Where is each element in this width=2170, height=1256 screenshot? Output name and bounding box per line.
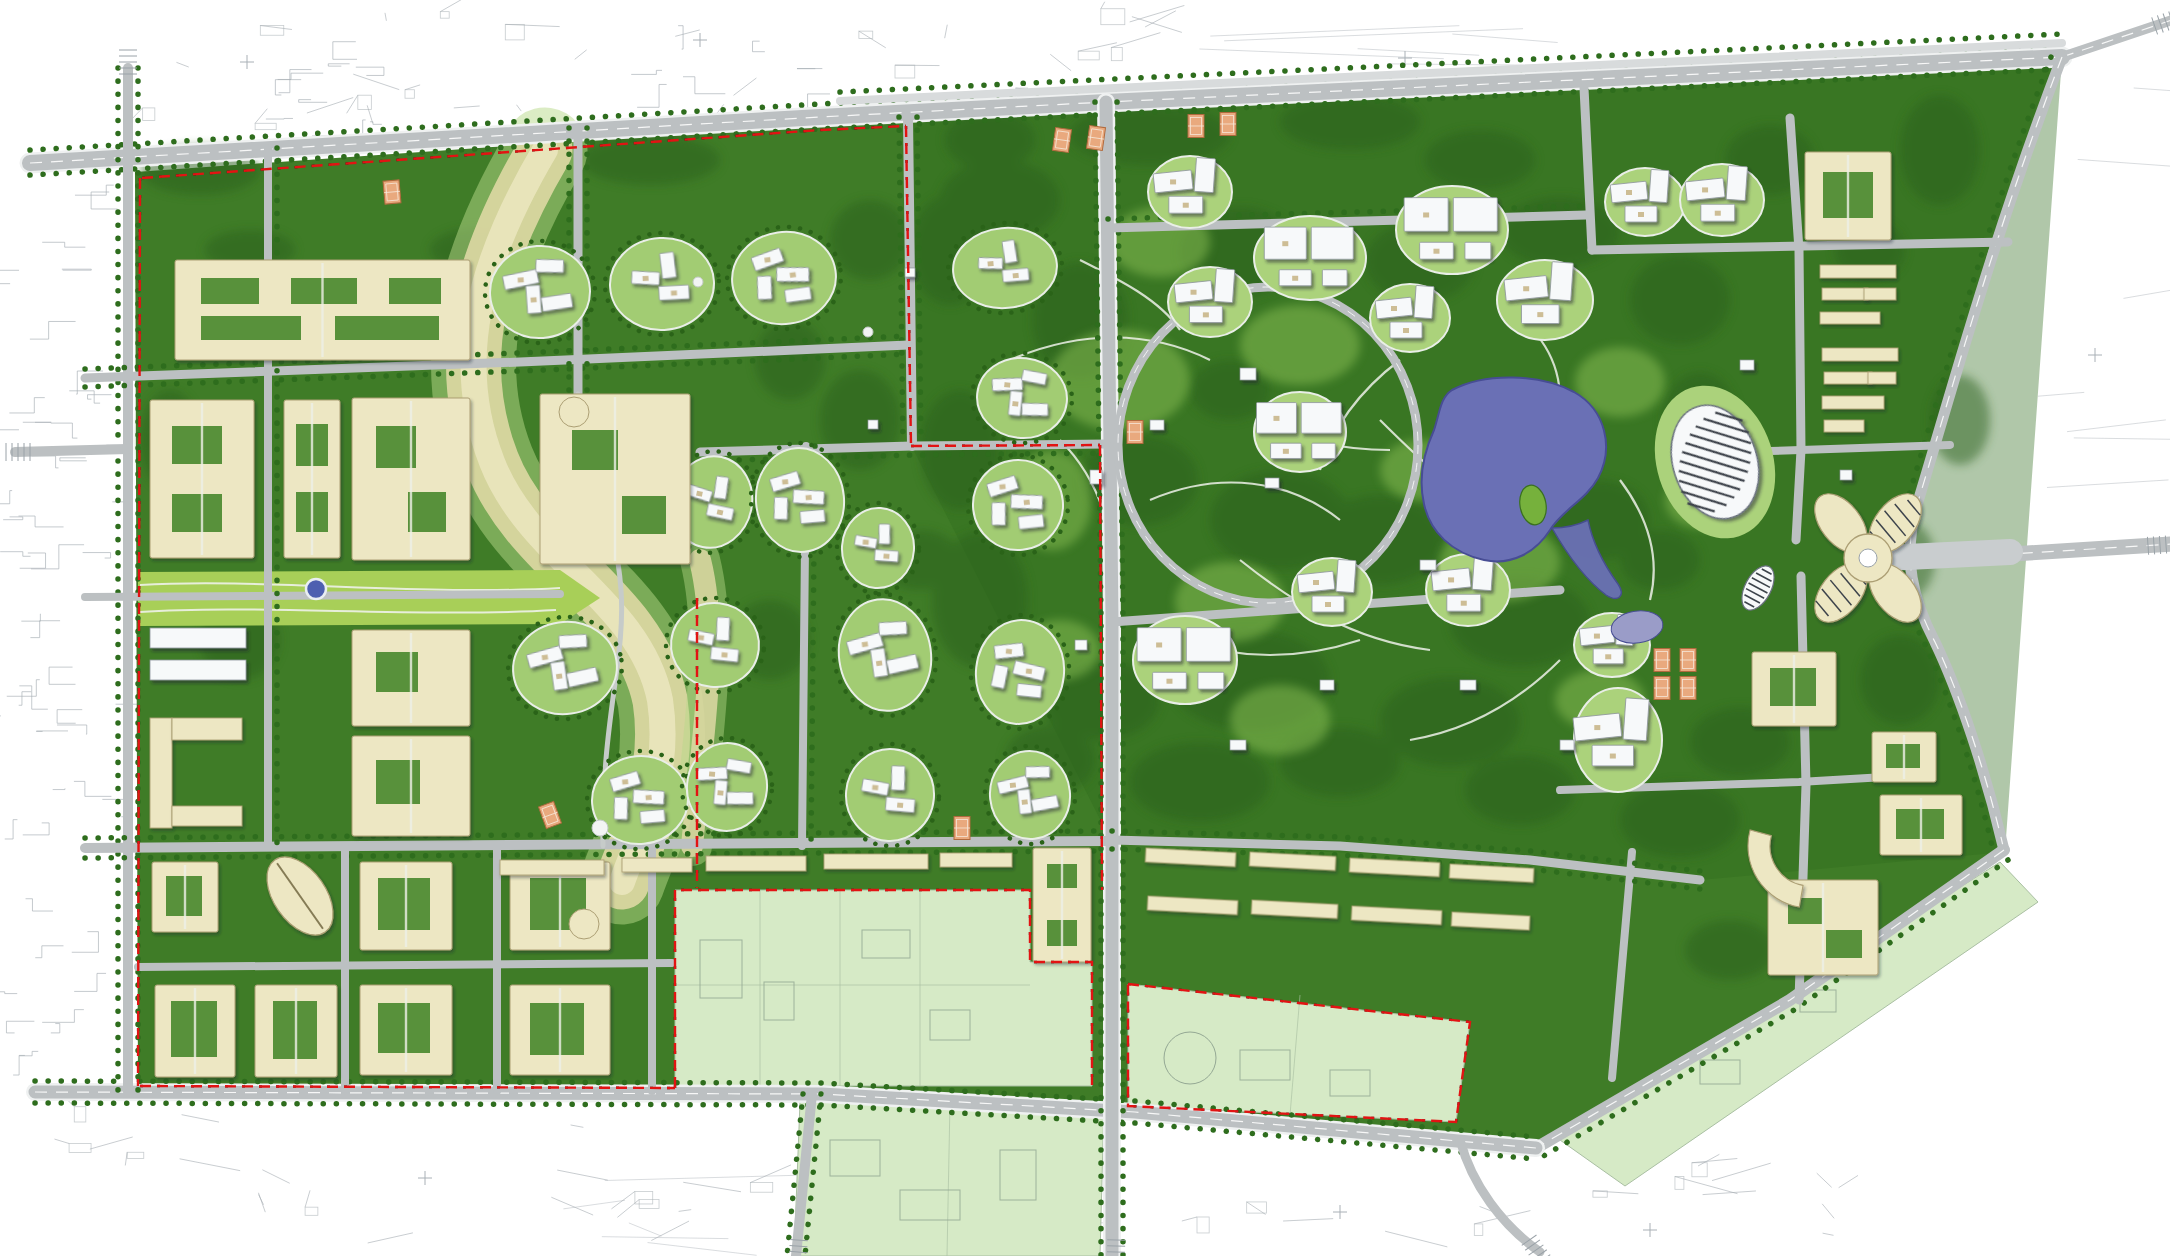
- survey-linework: [563, 1200, 625, 1209]
- tennis-court: [1680, 649, 1696, 672]
- survey-linework: [1385, 1231, 1447, 1247]
- survey-structure: [255, 123, 276, 129]
- survey-structure: [127, 1152, 144, 1158]
- survey-linework: [72, 932, 99, 953]
- survey-linework: [2067, 420, 2166, 432]
- survey-linework: [1132, 17, 1182, 33]
- small-building: [1840, 470, 1852, 480]
- survey-linework: [30, 621, 60, 638]
- survey-structure: [143, 108, 155, 121]
- tree-mass: [1860, 635, 1940, 725]
- survey-linework: [370, 122, 382, 125]
- ne-courtyard-building: [1805, 152, 1891, 240]
- survey-linework: [88, 395, 112, 399]
- sw-courtyard-building: [360, 862, 452, 950]
- east-cluster: [1148, 156, 1232, 228]
- u-shape-building: [172, 718, 242, 740]
- roadway: [1106, 102, 1112, 1256]
- survey-linework: [36, 731, 67, 732]
- inner-courtyard: [201, 316, 301, 340]
- survey-linework: [551, 1197, 593, 1215]
- survey-linework: [1130, 5, 1185, 21]
- survey-structure: [440, 12, 449, 19]
- survey-structure: [305, 1207, 318, 1215]
- residential-building: [660, 252, 677, 279]
- survey-linework: [6, 1021, 34, 1033]
- small-building: [1265, 478, 1279, 488]
- survey-linework: [0, 716, 1, 728]
- survey-linework: [637, 84, 667, 107]
- survey-cross-mark: [1333, 1205, 1347, 1219]
- survey-linework: [32, 456, 59, 468]
- survey-structure: [405, 90, 414, 98]
- east-building: [1301, 403, 1341, 434]
- white-slab-building: [150, 628, 246, 648]
- survey-linework: [35, 946, 63, 958]
- survey-linework: [368, 1233, 413, 1243]
- survey-linework: [1247, 1202, 1266, 1215]
- survey-linework: [305, 1190, 310, 1207]
- residential-building: [714, 476, 729, 499]
- tennis-court: [1052, 127, 1071, 152]
- round-pavilion: [569, 909, 599, 939]
- east-building: [1311, 227, 1353, 259]
- inner-courtyard: [172, 494, 222, 532]
- u-shape-building: [172, 806, 242, 826]
- survey-cross-mark: [693, 33, 707, 47]
- survey-linework: [753, 41, 765, 52]
- survey-structure: [1197, 1217, 1209, 1233]
- residential-building: [716, 617, 729, 641]
- se-courtyard-building: [1752, 652, 1836, 726]
- residential-building: [757, 276, 772, 299]
- east-cluster: [1168, 267, 1252, 337]
- survey-linework: [60, 458, 87, 461]
- se-courtyard-building: [1872, 732, 1936, 782]
- slab-building: [1824, 420, 1864, 432]
- survey-linework: [683, 77, 725, 94]
- east-building: [1336, 559, 1356, 592]
- white-slab-building: [150, 660, 246, 680]
- survey-linework: [675, 30, 699, 36]
- slab-building: [824, 854, 928, 869]
- u-shape-building: [150, 718, 172, 828]
- inner-courtyard: [389, 278, 441, 304]
- survey-structure: [895, 65, 915, 78]
- small-building: [1075, 640, 1087, 650]
- survey-linework: [19, 692, 32, 706]
- east-building: [1312, 443, 1336, 458]
- survey-linework: [54, 1139, 69, 1143]
- survey-linework: [683, 1182, 741, 1191]
- survey-linework: [21, 614, 40, 621]
- survey-linework: [440, 0, 473, 12]
- survey-linework: [0, 270, 19, 283]
- east-cluster: [1605, 168, 1685, 236]
- slab-building: [1822, 396, 1884, 409]
- east-building: [1550, 262, 1574, 301]
- survey-linework: [260, 26, 292, 30]
- survey-linework: [53, 789, 66, 790]
- survey-linework: [19, 686, 48, 709]
- east-building: [1194, 157, 1215, 192]
- survey-linework: [1182, 1217, 1197, 1221]
- roadway: [138, 963, 672, 967]
- survey-linework: [405, 85, 420, 90]
- east-building: [1649, 169, 1669, 202]
- plaza-circle: [592, 820, 608, 836]
- survey-linework: [734, 78, 757, 95]
- survey-linework: [9, 398, 44, 413]
- tree-mass: [1130, 742, 1270, 822]
- survey-linework: [176, 62, 188, 67]
- residential-building: [800, 509, 825, 523]
- small-building: [868, 420, 878, 429]
- master-plan-rendering: [0, 0, 2170, 1256]
- tennis-court: [383, 180, 401, 204]
- survey-linework: [307, 98, 353, 113]
- small-building: [1560, 740, 1574, 750]
- survey-structure: [74, 1107, 86, 1122]
- east-cluster: [1680, 164, 1764, 236]
- east-building: [1414, 285, 1434, 318]
- inner-courtyard: [408, 492, 446, 532]
- survey-linework: [26, 899, 53, 911]
- survey-linework: [20, 553, 46, 568]
- tree-mass: [1380, 677, 1520, 767]
- survey-structure: [1078, 51, 1099, 60]
- survey-linework: [262, 1170, 289, 1183]
- slab-building: [622, 858, 692, 872]
- slab-building: [1868, 372, 1896, 384]
- residential-building: [614, 797, 628, 819]
- road-central-north-south-road: [1095, 102, 1123, 1256]
- survey-linework: [571, 1125, 584, 1127]
- survey-linework: [2047, 480, 2169, 488]
- survey-linework: [557, 1170, 608, 1180]
- courtyard-building: [352, 736, 470, 836]
- roadway: [2062, 20, 2170, 57]
- survey-linework: [575, 50, 587, 59]
- survey-linework: [57, 710, 82, 724]
- survey-linework: [19, 516, 64, 527]
- east-building: [1186, 628, 1230, 662]
- survey-linework: [57, 725, 87, 734]
- tree-mass: [1630, 255, 1730, 345]
- reserved-parcel-south: [794, 1102, 1104, 1256]
- site-plan-document: [0, 0, 2170, 1256]
- plaza-circle: [693, 277, 703, 287]
- survey-linework: [629, 1223, 662, 1236]
- inner-courtyard: [1826, 930, 1862, 958]
- survey-linework: [631, 70, 662, 74]
- meadow-patch: [1240, 305, 1360, 385]
- inner-courtyard: [530, 1003, 584, 1055]
- inner-courtyard: [291, 278, 357, 304]
- residential-building: [640, 809, 665, 823]
- residential-building: [1016, 683, 1041, 698]
- small-building: [905, 268, 915, 277]
- survey-linework: [23, 823, 49, 835]
- survey-structure: [358, 95, 372, 109]
- survey-linework: [0, 992, 17, 994]
- survey-linework: [602, 1237, 729, 1239]
- survey-cross-mark: [1643, 1223, 1657, 1237]
- inner-courtyard: [378, 1003, 430, 1053]
- slab-building: [706, 856, 806, 871]
- road-flower-plaza: [1886, 552, 2010, 558]
- plaza-circle: [863, 327, 873, 337]
- survey-linework: [1145, 11, 1176, 27]
- residential-building: [1022, 403, 1048, 415]
- survey-linework: [356, 67, 384, 75]
- survey-linework: [1210, 26, 1459, 36]
- slab-building: [1864, 288, 1896, 300]
- tree-mass: [1425, 130, 1535, 190]
- survey-linework: [1817, 1173, 1832, 1187]
- survey-linework: [51, 1024, 60, 1033]
- survey-structure: [1111, 48, 1122, 61]
- residential-building: [1026, 766, 1050, 777]
- east-cluster: [1133, 616, 1237, 704]
- tennis-court: [1188, 115, 1204, 138]
- survey-linework: [180, 1159, 241, 1171]
- small-building: [1460, 680, 1476, 690]
- survey-linework: [648, 1243, 757, 1256]
- school-building: [175, 260, 470, 360]
- residential-building: [1018, 514, 1044, 529]
- east-building: [1623, 698, 1649, 741]
- inner-courtyard: [378, 878, 430, 930]
- inner-courtyard: [572, 430, 618, 470]
- survey-linework: [1224, 29, 1523, 41]
- survey-linework: [328, 64, 349, 66]
- courtyard-building: [150, 400, 254, 558]
- residential-building: [727, 792, 753, 804]
- slab-building: [1820, 312, 1880, 324]
- fountain: [306, 579, 326, 599]
- survey-structure: [1101, 9, 1125, 25]
- courtyard-building: [352, 630, 470, 726]
- survey-linework: [1199, 49, 1443, 59]
- inner-courtyard: [172, 426, 222, 464]
- roadway: [85, 841, 1106, 848]
- sw-courtyard-building: [360, 985, 452, 1075]
- survey-linework: [5, 820, 18, 839]
- tree-mass: [1620, 530, 1700, 590]
- survey-linework: [13, 1055, 25, 1075]
- survey-linework: [51, 423, 78, 438]
- survey-linework: [2134, 88, 2170, 94]
- survey-linework: [2078, 159, 2170, 168]
- survey-cross-mark: [240, 55, 254, 69]
- east-building: [1726, 165, 1747, 200]
- survey-structure: [505, 24, 524, 40]
- courtyard-building: [540, 394, 690, 564]
- survey-linework: [1387, 64, 1535, 65]
- survey-linework: [75, 185, 114, 195]
- survey-linework: [385, 13, 386, 21]
- east-building: [1453, 198, 1497, 232]
- survey-cross-mark: [2088, 348, 2102, 362]
- survey-linework: [1822, 1204, 1834, 1219]
- survey-linework: [91, 192, 117, 209]
- survey-linework: [3, 517, 23, 520]
- small-building: [1230, 740, 1246, 750]
- residential-building: [774, 497, 788, 519]
- tree-mass: [1500, 197, 1620, 267]
- tree-mass: [1620, 782, 1740, 858]
- survey-linework: [74, 781, 111, 796]
- sw-courtyard-building: [510, 985, 610, 1075]
- survey-linework: [42, 242, 85, 247]
- eight-shape-building: [1033, 848, 1091, 962]
- residential-building: [879, 621, 907, 635]
- residential-building: [992, 503, 1006, 526]
- small-building: [1240, 368, 1256, 380]
- survey-linework: [7, 680, 40, 697]
- survey-linework: [2123, 285, 2170, 298]
- small-building: [1320, 680, 1334, 690]
- survey-linework: [1839, 1175, 1858, 1187]
- survey-linework: [62, 269, 91, 270]
- courtyard-building: [284, 400, 340, 558]
- road-west-entry-stub: [15, 449, 128, 452]
- survey-linework: [679, 1210, 692, 1212]
- survey-linework: [90, 1137, 133, 1149]
- east-building: [1465, 242, 1491, 259]
- survey-linework: [0, 552, 30, 557]
- survey-linework: [678, 26, 683, 49]
- survey-structure: [1474, 1224, 1482, 1236]
- survey-linework: [30, 321, 76, 339]
- east-cluster: [1292, 558, 1372, 626]
- survey-linework: [102, 799, 126, 816]
- tennis-court: [1127, 421, 1143, 444]
- east-cluster: [1370, 284, 1450, 352]
- small-building: [1740, 360, 1754, 370]
- tennis-court: [954, 817, 970, 840]
- survey-linework: [1712, 1163, 1771, 1180]
- survey-linework: [1692, 1159, 1737, 1163]
- survey-linework: [258, 1193, 265, 1212]
- se-courtyard-building: [1880, 795, 1962, 855]
- residential-building: [559, 634, 587, 648]
- survey-linework: [2038, 392, 2084, 396]
- survey-linework: [299, 100, 327, 103]
- tree-mass: [1685, 920, 1775, 980]
- flower-atrium: [1859, 549, 1877, 567]
- tree-mass: [1900, 95, 1980, 205]
- survey-linework: [69, 391, 100, 403]
- survey-linework: [750, 1165, 791, 1183]
- small-building: [1420, 560, 1436, 570]
- east-cluster: [1254, 392, 1346, 472]
- tennis-court: [1680, 677, 1696, 700]
- survey-linework: [1675, 1177, 1738, 1194]
- survey-linework: [266, 118, 293, 119]
- inner-courtyard: [335, 316, 439, 340]
- tennis-court: [1086, 125, 1105, 150]
- slab-building: [940, 853, 1012, 867]
- survey-linework: [1452, 34, 1557, 42]
- survey-linework: [333, 42, 357, 60]
- survey-linework: [1593, 1191, 1638, 1194]
- sw-courtyard-building: [255, 985, 337, 1077]
- survey-linework: [1111, 33, 1160, 48]
- survey-cross-mark: [1398, 51, 1412, 65]
- east-cluster: [1426, 554, 1510, 626]
- inner-courtyard: [376, 760, 420, 804]
- slab-building: [1822, 348, 1898, 361]
- survey-linework: [367, 105, 372, 123]
- round-pavilion: [559, 397, 589, 427]
- road-west-boundary-road: [118, 68, 138, 1092]
- small-building: [1150, 420, 1164, 430]
- tree-mass: [830, 200, 910, 280]
- east-cluster: [1497, 260, 1593, 340]
- survey-linework: [255, 109, 267, 124]
- residential-building: [891, 766, 905, 790]
- sw-courtyard-building: [155, 985, 235, 1077]
- tennis-court: [1654, 677, 1670, 700]
- tennis-court: [1220, 113, 1236, 136]
- inner-courtyard: [201, 278, 259, 304]
- roadway: [1886, 552, 2010, 558]
- inner-courtyard: [622, 496, 666, 534]
- survey-linework: [182, 1115, 219, 1122]
- slab-building: [1820, 265, 1896, 278]
- east-building: [1322, 270, 1347, 286]
- tree-mass: [580, 135, 720, 185]
- roadway: [15, 449, 128, 452]
- survey-linework: [1101, 2, 1105, 9]
- survey-linework: [517, 105, 522, 111]
- slab-building: [1824, 372, 1872, 384]
- east-cluster: [1573, 688, 1662, 792]
- survey-linework: [0, 491, 12, 504]
- east-cluster: [1254, 216, 1366, 300]
- survey-structure: [635, 1191, 653, 1204]
- east-building: [1214, 268, 1235, 302]
- survey-linework: [42, 1010, 84, 1023]
- survey-linework: [454, 106, 480, 108]
- road-southwest-street: [138, 963, 672, 967]
- courtyard-building: [352, 398, 470, 560]
- survey-linework: [1283, 1219, 1333, 1221]
- east-building: [1198, 672, 1224, 689]
- residential-building: [879, 524, 890, 544]
- slab-building: [500, 860, 604, 875]
- survey-cross-mark: [418, 1171, 432, 1185]
- survey-linework: [1050, 54, 1071, 70]
- road-northeast-diagonal: [2062, 20, 2170, 57]
- survey-linework: [49, 667, 75, 684]
- survey-linework: [278, 73, 324, 79]
- survey-structure: [69, 1144, 91, 1153]
- sw-courtyard-building: [152, 862, 218, 932]
- survey-linework: [1823, 1233, 1834, 1235]
- survey-linework: [945, 25, 948, 39]
- east-cluster: [1396, 186, 1508, 274]
- survey-linework: [31, 545, 84, 569]
- survey-structure: [750, 1183, 772, 1193]
- survey-linework: [74, 973, 106, 991]
- survey-linework: [1358, 49, 1480, 56]
- slab-building: [1822, 288, 1868, 300]
- survey-linework: [2074, 438, 2170, 440]
- residential-building: [536, 259, 564, 272]
